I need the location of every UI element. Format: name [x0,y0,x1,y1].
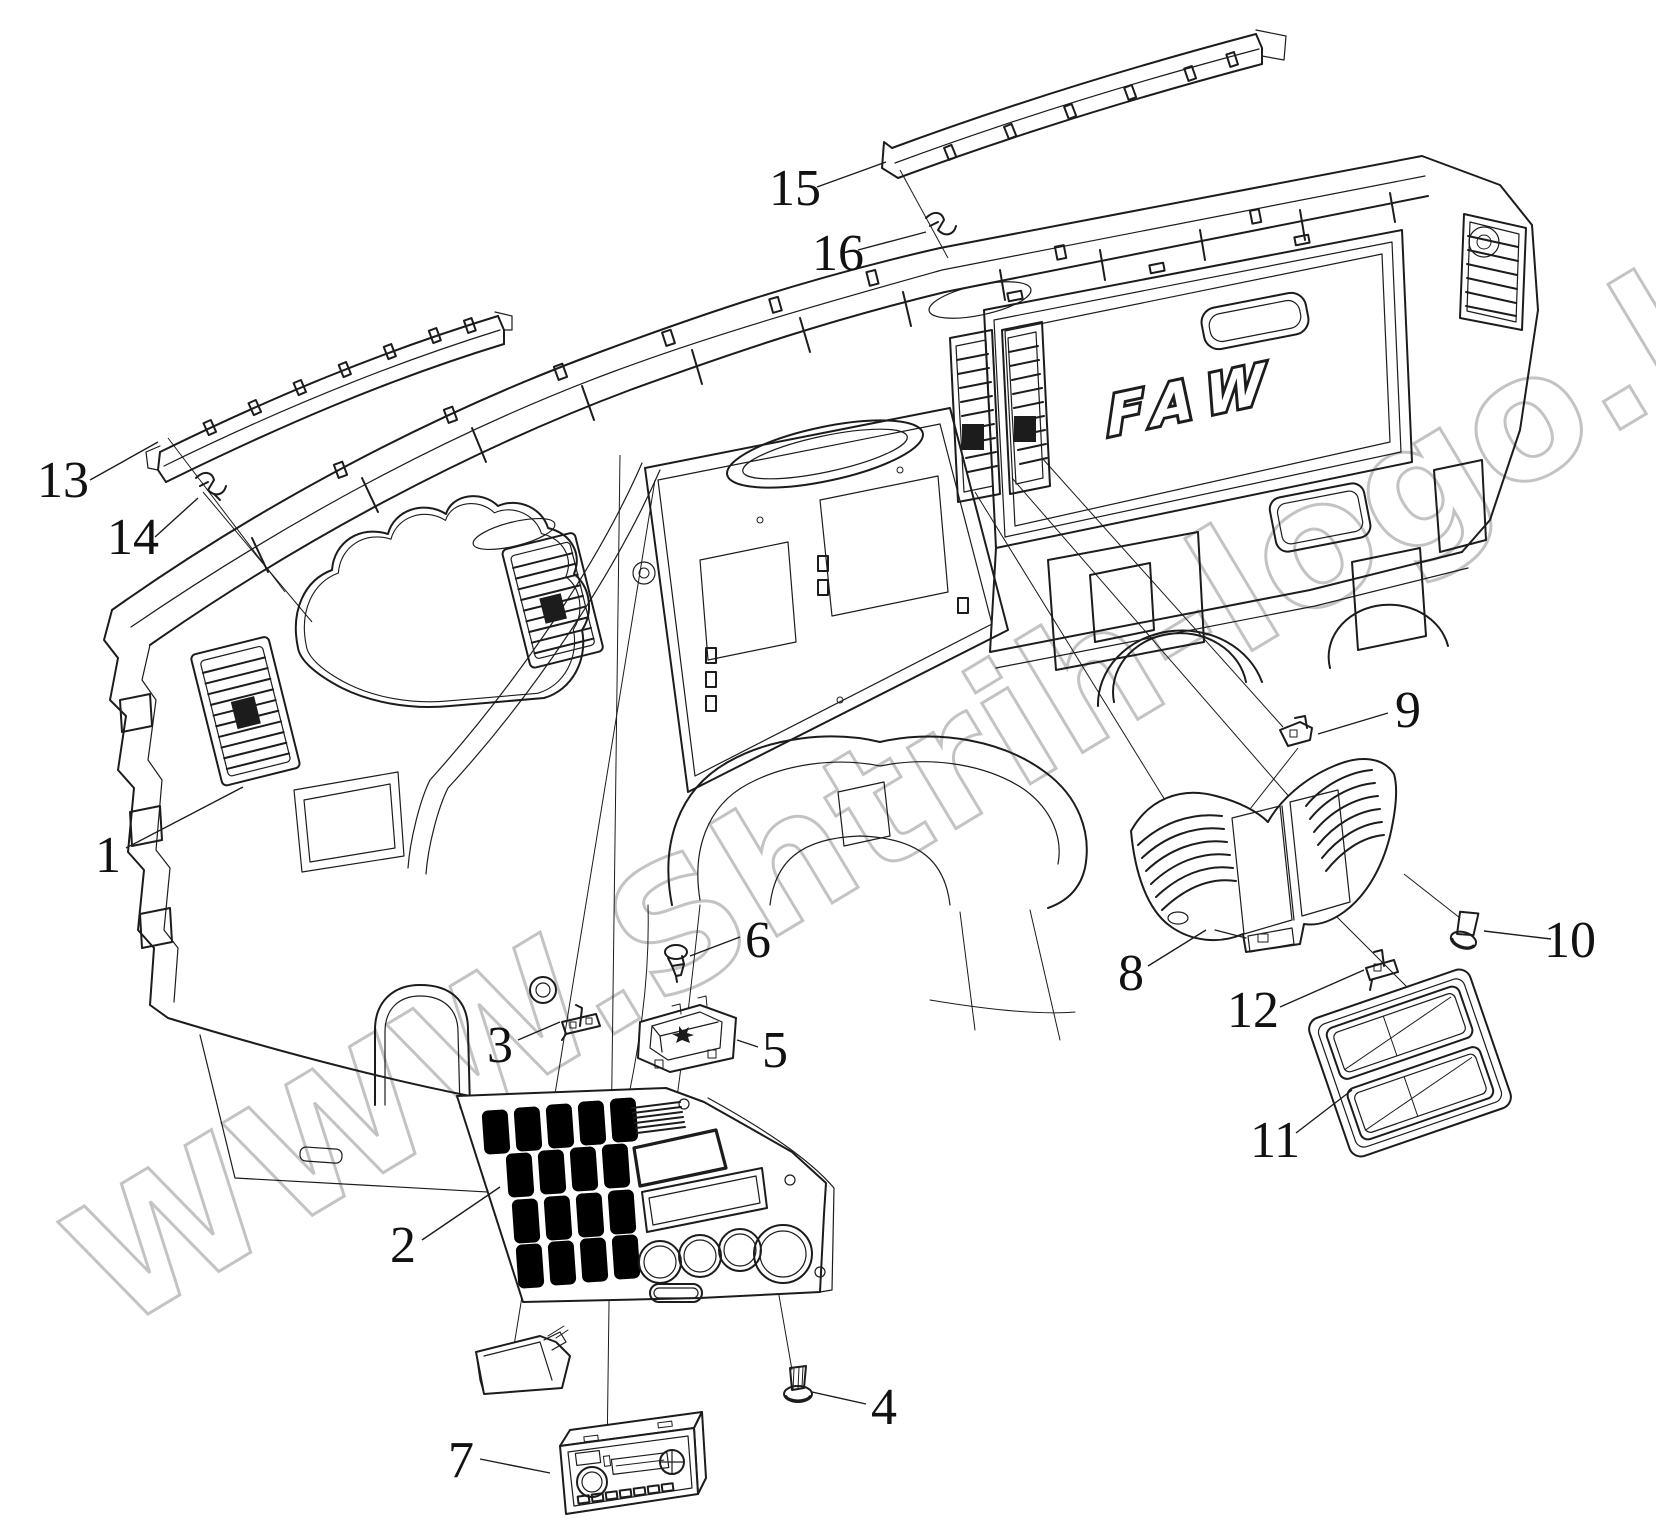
part-15-defroster-strip-right [882,30,1286,178]
exploded-parts-diagram: WWW.Shtrih-logo.kz [0,0,1656,1535]
part-8-center-vent-assembly [1131,759,1396,952]
part-7-radio [560,1412,706,1514]
callout-11: 11 [1250,1112,1300,1169]
dash-center-vents [950,322,1050,502]
assembly-line-2 [203,492,312,622]
callout-13: 13 [37,452,89,509]
leader-line-4 [812,1392,866,1404]
leader-line-14 [155,498,198,537]
leader-line-12 [1280,970,1364,1007]
leader-line-8 [1148,930,1206,966]
part-11-vent-bezel [1306,966,1514,1159]
leader-line-15 [817,162,886,187]
leader-line-1 [126,787,243,848]
leader-line-16 [858,232,926,250]
part-10-screw [1449,908,1485,952]
callout-15: 15 [769,160,821,217]
callout-2: 2 [390,1217,416,1274]
part-2-switch-panel [457,1088,834,1302]
part-16-clip [926,213,956,234]
part-13-defroster-strip-left [146,312,512,482]
defroster-slots [470,275,1034,556]
callout-14: 14 [107,509,159,566]
leader-line-10 [1484,931,1551,939]
leader-line-7 [480,1459,550,1473]
callout-8: 8 [1118,945,1144,1002]
left-vent-grille [190,636,300,786]
part-14-clip [196,473,226,500]
left-end-brackets [120,694,172,948]
callout-12: 12 [1227,982,1279,1039]
watermark-text: WWW.Shtrih-logo.kz [36,154,1656,1367]
faw-logo-text: FAW [1106,348,1281,449]
part-12-clip [1366,950,1398,990]
leader-line-13 [90,442,158,480]
part-9-clip [1280,716,1312,746]
leader-line-2 [422,1187,500,1240]
callout-6: 6 [745,912,771,969]
callout-10: 10 [1544,912,1596,969]
callout-4: 4 [871,1379,897,1436]
callout-3: 3 [487,1017,513,1074]
ashtray-tray [476,1326,570,1394]
callout-7: 7 [448,1432,474,1489]
callout-1: 1 [95,827,121,884]
callout-9: 9 [1395,682,1421,739]
callout-5: 5 [762,1022,788,1079]
part-4-screw [784,1366,812,1402]
exploded-parts-diagram-page: WWW.Shtrih-logo.kz [0,0,1656,1535]
leader-line-5 [737,1040,758,1047]
assembly-line-11 [1404,874,1460,918]
callout-16: 16 [812,225,864,282]
leader-line-9 [1318,713,1388,734]
right-end-vent [1460,214,1526,330]
